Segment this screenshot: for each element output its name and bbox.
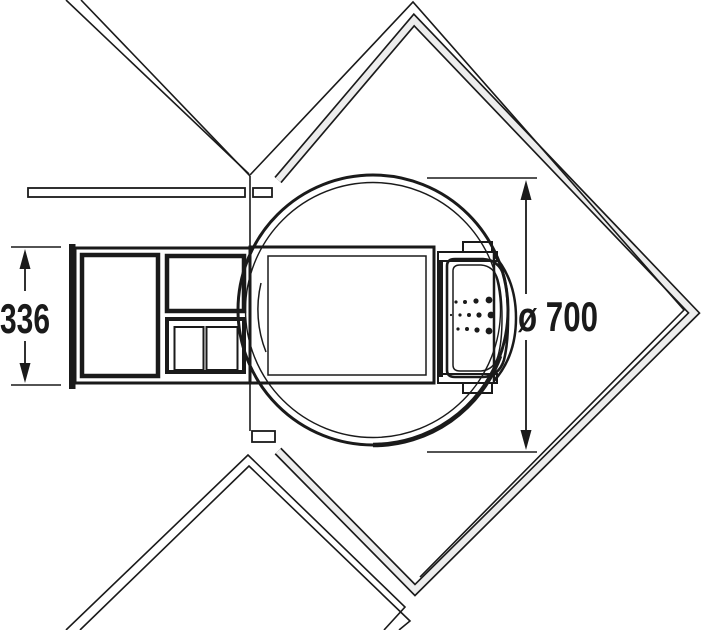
arrow-down-icon	[20, 363, 31, 383]
dimension-label-diameter: ø 700	[518, 293, 598, 340]
dimension-label-pullout: 336	[0, 295, 50, 342]
perforation-dot	[474, 327, 479, 332]
waste-bin-small	[167, 256, 244, 311]
perforation-dot	[463, 300, 467, 304]
perforation-dot	[454, 300, 457, 303]
wall-lower-outer-line	[66, 455, 405, 630]
arrow-down-icon	[521, 430, 532, 450]
wall-upper-left-outer-line	[66, 0, 249, 174]
wall-upper-left-inner-line	[81, 0, 250, 176]
plan-view-drawing: 336 ø 700	[0, 0, 712, 630]
perforation-dot	[467, 313, 471, 317]
door-hinge-top-outer	[463, 242, 492, 252]
tray-platform	[268, 256, 426, 375]
carousel-shadow-arc	[373, 356, 500, 445]
perforation-dot	[476, 312, 481, 317]
perforation-dot	[456, 327, 459, 330]
arrow-up-icon	[20, 249, 31, 269]
carousel-inner-edge-arc	[258, 283, 266, 352]
countertop-band-surface	[278, 20, 694, 590]
tray-frame	[250, 247, 434, 383]
bin-unit-body	[75, 248, 250, 383]
cabinet-side-bottom	[252, 431, 275, 442]
carousel-rim-line	[246, 183, 501, 438]
countertop-band	[278, 20, 694, 590]
perforation-dot	[458, 313, 461, 316]
perforation-dot	[488, 312, 495, 319]
neighbor-front-panel	[28, 188, 245, 197]
perforation-dot	[473, 298, 478, 303]
arrow-up-icon	[521, 180, 532, 200]
perforation-dot	[486, 328, 493, 335]
carousel	[238, 175, 508, 445]
bin-unit	[69, 244, 250, 389]
waste-bin-large	[82, 255, 158, 376]
utility-box-left	[175, 327, 204, 370]
cabinet-side-top	[253, 188, 272, 197]
dimension-pullout: 336	[0, 247, 61, 385]
door-assembly	[437, 242, 516, 393]
bin-unit-front-panel	[69, 244, 76, 389]
perforation-dot	[486, 297, 493, 304]
tray-end-bar	[437, 261, 443, 377]
perforation-dots	[450, 297, 495, 335]
wall-lower-inner-line	[80, 466, 410, 630]
pullout-tray	[250, 247, 434, 383]
utility-box-right	[207, 327, 238, 370]
perforation-dot	[465, 327, 469, 331]
diagram-canvas: 336 ø 700	[0, 0, 712, 630]
perforation-dot	[450, 314, 452, 316]
